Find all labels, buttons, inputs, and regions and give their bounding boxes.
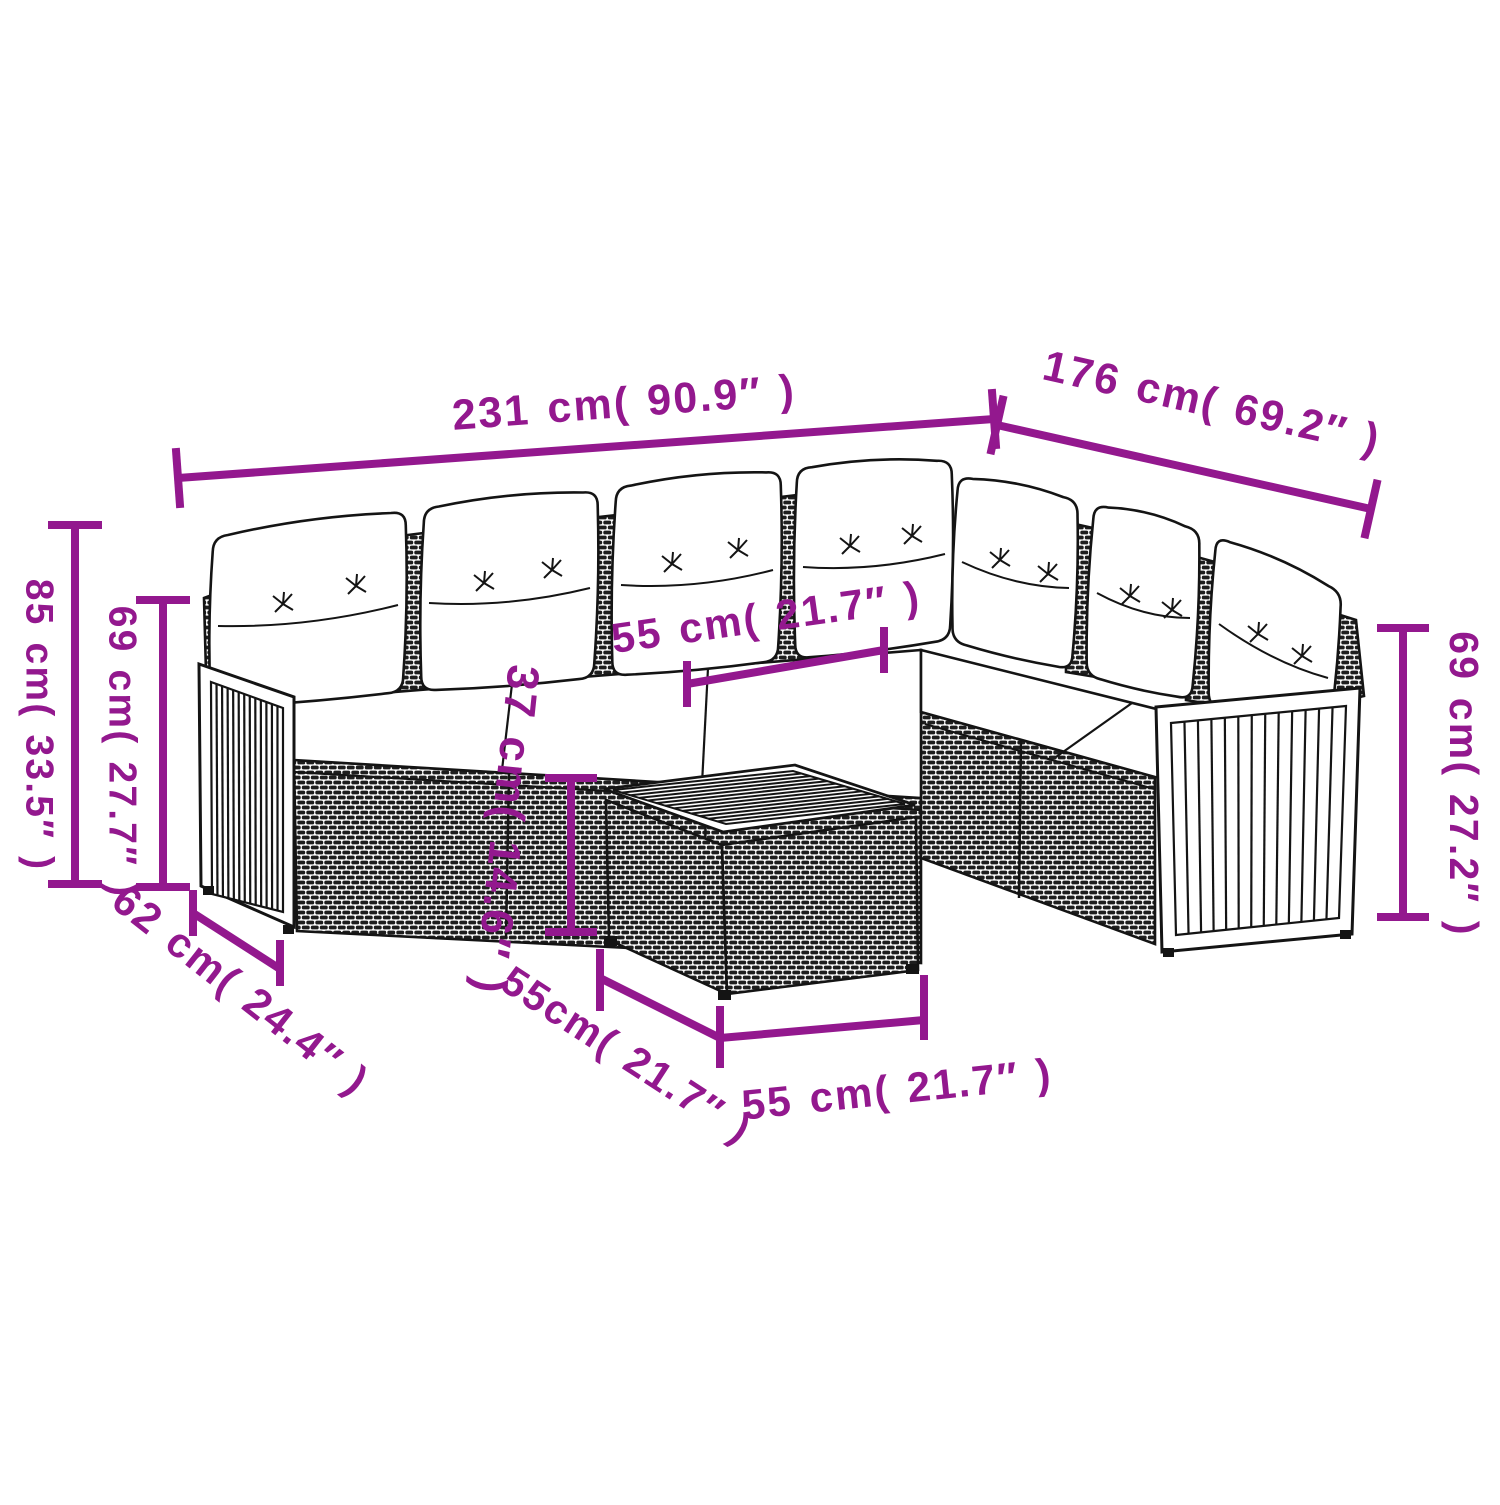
svg-text:85 cm( 33.5″ ): 85 cm( 33.5″ ) (18, 579, 61, 872)
svg-text:69 cm( 27.2″ ): 69 cm( 27.2″ ) (1441, 631, 1487, 937)
svg-text:69 cm( 27.7″ ): 69 cm( 27.7″ ) (101, 606, 144, 899)
